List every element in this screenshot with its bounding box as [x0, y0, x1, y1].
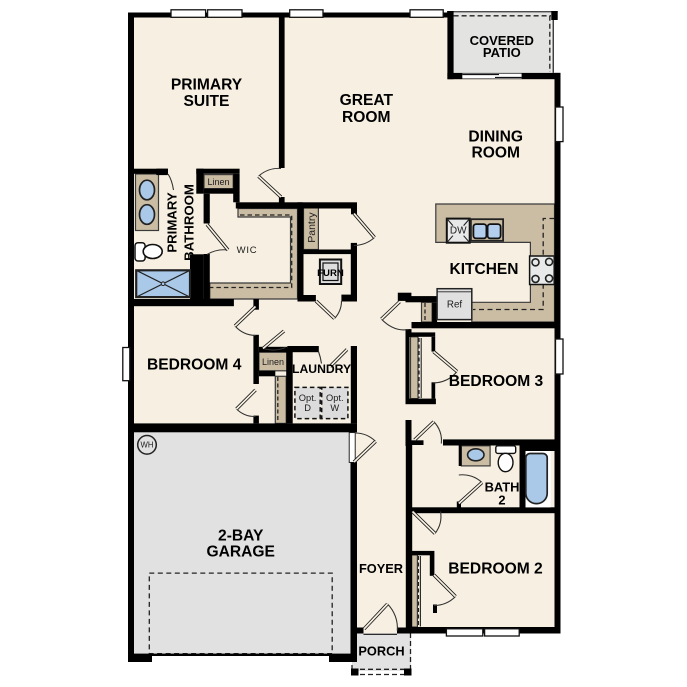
svg-text:Pantry: Pantry [306, 212, 318, 243]
svg-text:KITCHEN: KITCHEN [450, 261, 519, 278]
svg-text:DINING: DINING [468, 128, 523, 145]
svg-text:PRIMARY: PRIMARY [165, 192, 180, 253]
svg-text:D: D [304, 403, 311, 413]
svg-text:LAUNDRY: LAUNDRY [292, 362, 351, 376]
svg-text:SUITE: SUITE [184, 93, 230, 110]
svg-text:BEDROOM 3: BEDROOM 3 [449, 373, 544, 390]
svg-text:WIC: WIC [237, 245, 258, 256]
svg-text:Ref: Ref [447, 300, 463, 311]
svg-text:Opt.: Opt. [326, 393, 344, 403]
svg-text:BATHROOM: BATHROOM [182, 184, 197, 261]
svg-text:ROOM: ROOM [342, 109, 391, 126]
svg-text:W: W [330, 403, 339, 413]
svg-text:DW: DW [450, 226, 467, 237]
svg-text:PATIO: PATIO [483, 45, 521, 60]
svg-text:2-BAY: 2-BAY [218, 528, 264, 545]
svg-text:FURN: FURN [317, 268, 344, 279]
svg-text:Opt.: Opt. [299, 393, 317, 403]
svg-text:Linen: Linen [207, 177, 229, 187]
svg-text:FOYER: FOYER [359, 561, 403, 576]
svg-text:ROOM: ROOM [471, 144, 520, 161]
svg-text:PRIMARY: PRIMARY [171, 76, 243, 93]
svg-text:BEDROOM 4: BEDROOM 4 [147, 356, 242, 373]
svg-text:2: 2 [498, 492, 505, 507]
svg-text:GREAT: GREAT [340, 92, 394, 109]
svg-text:GARAGE: GARAGE [206, 544, 274, 561]
svg-text:PORCH: PORCH [358, 644, 404, 659]
svg-text:WH: WH [141, 441, 154, 450]
svg-text:Linen: Linen [262, 357, 284, 367]
svg-text:BEDROOM 2: BEDROOM 2 [448, 560, 543, 577]
